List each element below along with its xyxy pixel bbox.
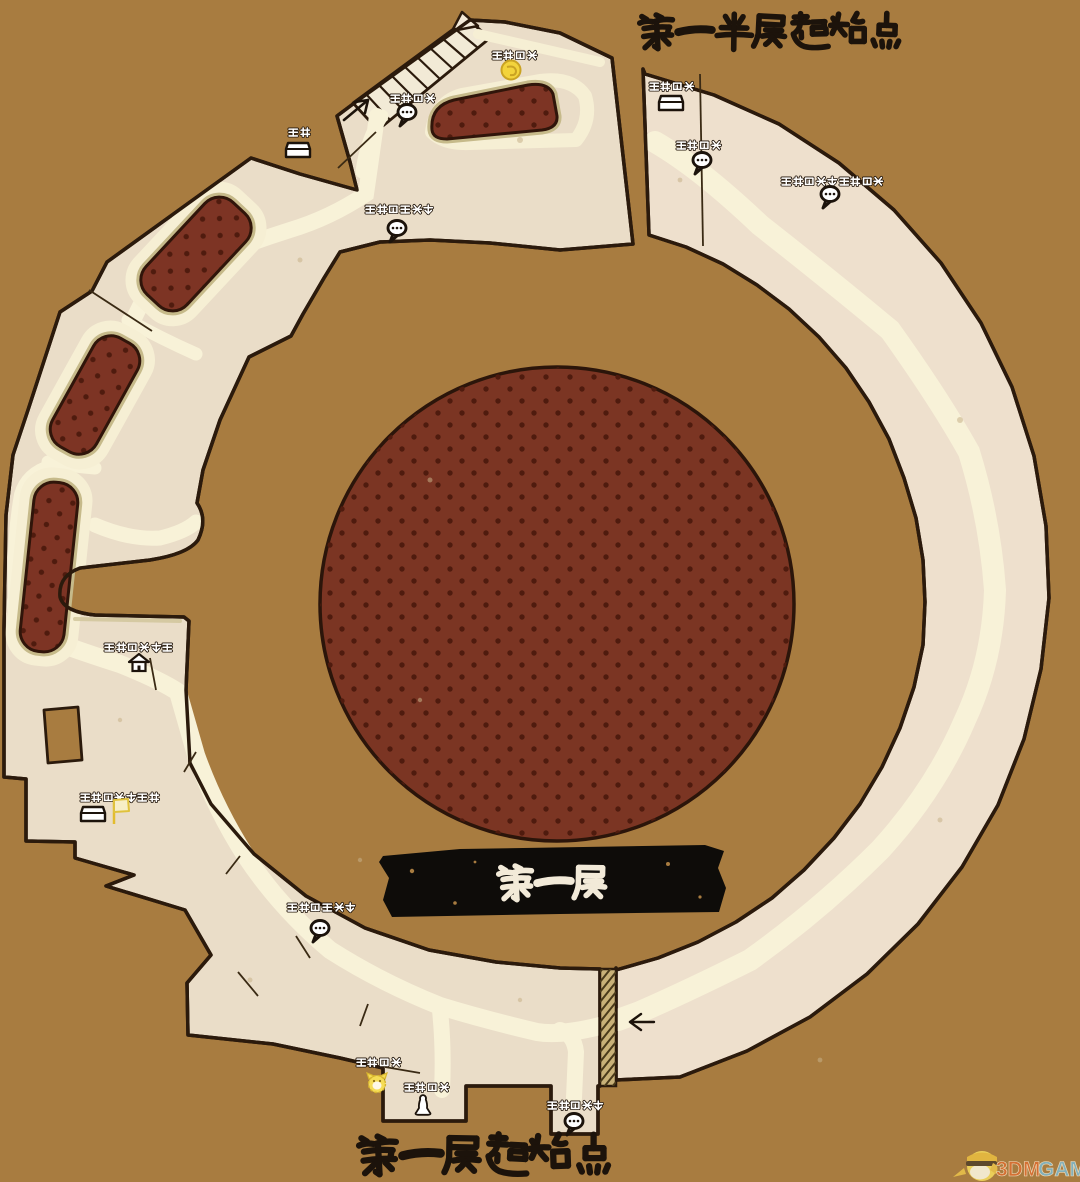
svg-text:GAME: GAME	[1038, 1158, 1080, 1181]
svg-text:3DM: 3DM	[996, 1158, 1040, 1181]
